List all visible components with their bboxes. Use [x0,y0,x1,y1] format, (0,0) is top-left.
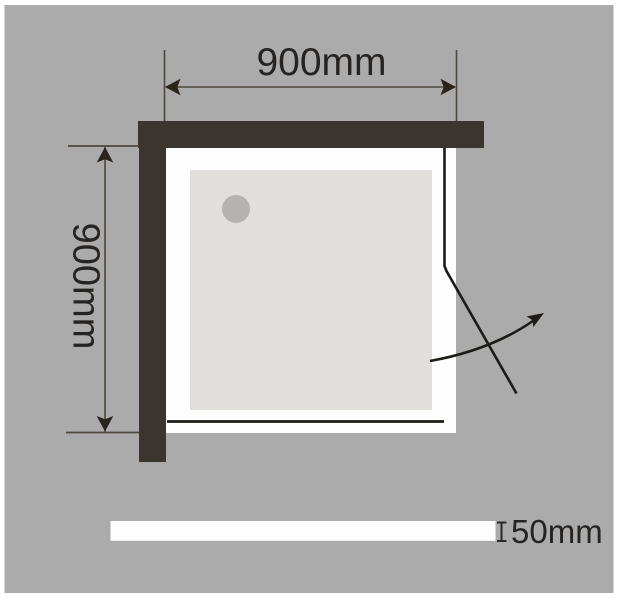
svg-text:900mm: 900mm [256,41,386,84]
svg-text:900mm: 900mm [65,223,107,350]
svg-text:50mm: 50mm [511,513,603,550]
